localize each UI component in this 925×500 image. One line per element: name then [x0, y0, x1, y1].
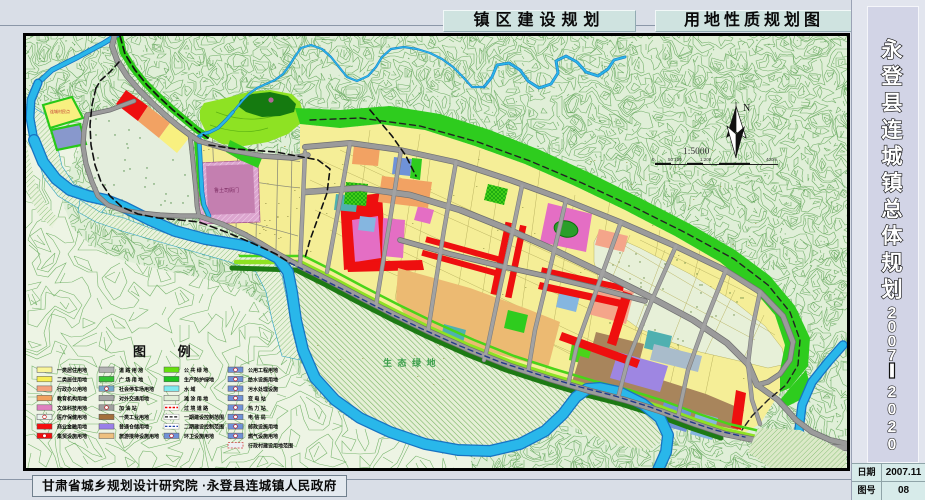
- svg-text:总: 总: [882, 198, 903, 222]
- svg-text:登: 登: [881, 65, 904, 89]
- svg-text:变 电 站: 变 电 站: [248, 395, 266, 402]
- svg-text:一类工业用地: 一类工业用地: [119, 414, 149, 421]
- svg-text:二类居住用地: 二类居住用地: [57, 376, 87, 383]
- svg-text:广 场 用 地: 广 场 用 地: [119, 376, 143, 383]
- svg-text:一类居住用地: 一类居住用地: [57, 367, 87, 374]
- svg-text:水 域: 水 域: [183, 386, 195, 393]
- svg-text:县: 县: [882, 92, 903, 115]
- svg-text:公 共 绿 地: 公 共 绿 地: [184, 367, 208, 374]
- svg-text:热 力 站: 热 力 站: [248, 405, 266, 412]
- svg-text:1:200: 1:200: [700, 157, 712, 162]
- svg-text:二期建设控制范围: 二期建设控制范围: [184, 424, 224, 431]
- svg-text:对外交通用地: 对外交通用地: [119, 395, 149, 402]
- svg-text:划: 划: [882, 278, 903, 301]
- svg-text:鲁土司衙门: 鲁土司衙门: [214, 187, 239, 194]
- svg-text:规: 规: [882, 252, 903, 275]
- svg-text:过 境 道 路: 过 境 道 路: [184, 405, 209, 412]
- svg-text:生产防护绿地: 生产防护绿地: [184, 376, 214, 383]
- svg-text:镇: 镇: [882, 172, 903, 195]
- svg-text:1:5000: 1:5000: [683, 147, 710, 157]
- svg-text:加 油 站: 加 油 站: [118, 405, 137, 412]
- svg-text:连: 连: [882, 118, 904, 142]
- svg-text:图 例: 图 例: [133, 344, 205, 359]
- svg-text:电 信 局: 电 信 局: [248, 414, 266, 421]
- svg-text:永: 永: [881, 39, 903, 62]
- svg-text:邮政设施用地: 邮政设施用地: [248, 424, 278, 431]
- svg-text:教育机构用地: 教育机构用地: [56, 395, 87, 402]
- svg-text:文体科技用地: 文体科技用地: [57, 405, 87, 412]
- svg-text:400m: 400m: [766, 157, 778, 162]
- svg-text:普通仓储用地: 普通仓储用地: [119, 424, 149, 431]
- svg-text:城: 城: [882, 144, 903, 168]
- svg-text:2: 2: [888, 419, 897, 436]
- svg-text:医疗保健用地: 医疗保健用地: [57, 414, 87, 421]
- svg-text:行政村建设用地范围: 行政村建设用地范围: [247, 443, 293, 450]
- svg-text:道 路 用 地: 道 路 用 地: [119, 367, 143, 374]
- svg-text:燃气设施用地: 燃气设施用地: [248, 433, 278, 440]
- svg-text:连城村民点: 连城村民点: [50, 108, 70, 114]
- svg-text:环卫设施用地: 环卫设施用地: [184, 433, 214, 440]
- svg-text:商业金融用地: 商业金融用地: [57, 424, 87, 431]
- svg-text:社会停车场用地: 社会停车场用地: [118, 386, 154, 393]
- svg-text:50 100: 50 100: [668, 157, 682, 162]
- svg-text:2: 2: [888, 384, 897, 401]
- svg-text:滩 涂 用 地: 滩 涂 用 地: [184, 395, 208, 402]
- svg-text:0: 0: [888, 402, 897, 419]
- svg-text:0: 0: [888, 437, 897, 454]
- svg-text:集贸设施用地: 集贸设施用地: [56, 433, 87, 440]
- svg-text:给水设施用地: 给水设施用地: [248, 376, 278, 383]
- svg-text:生态绿地: 生态绿地: [383, 357, 441, 368]
- svg-text:行政办公用地: 行政办公用地: [56, 386, 87, 393]
- svg-text:旅游接待设施用地: 旅游接待设施用地: [118, 433, 159, 440]
- svg-text:一期建设控制范围: 一期建设控制范围: [184, 414, 224, 421]
- svg-text:体: 体: [882, 225, 904, 248]
- svg-text:7: 7: [888, 348, 897, 365]
- svg-text:污水处理设施: 污水处理设施: [248, 386, 278, 393]
- svg-text:公用工程用地: 公用工程用地: [248, 367, 278, 374]
- svg-text:N: N: [743, 103, 750, 114]
